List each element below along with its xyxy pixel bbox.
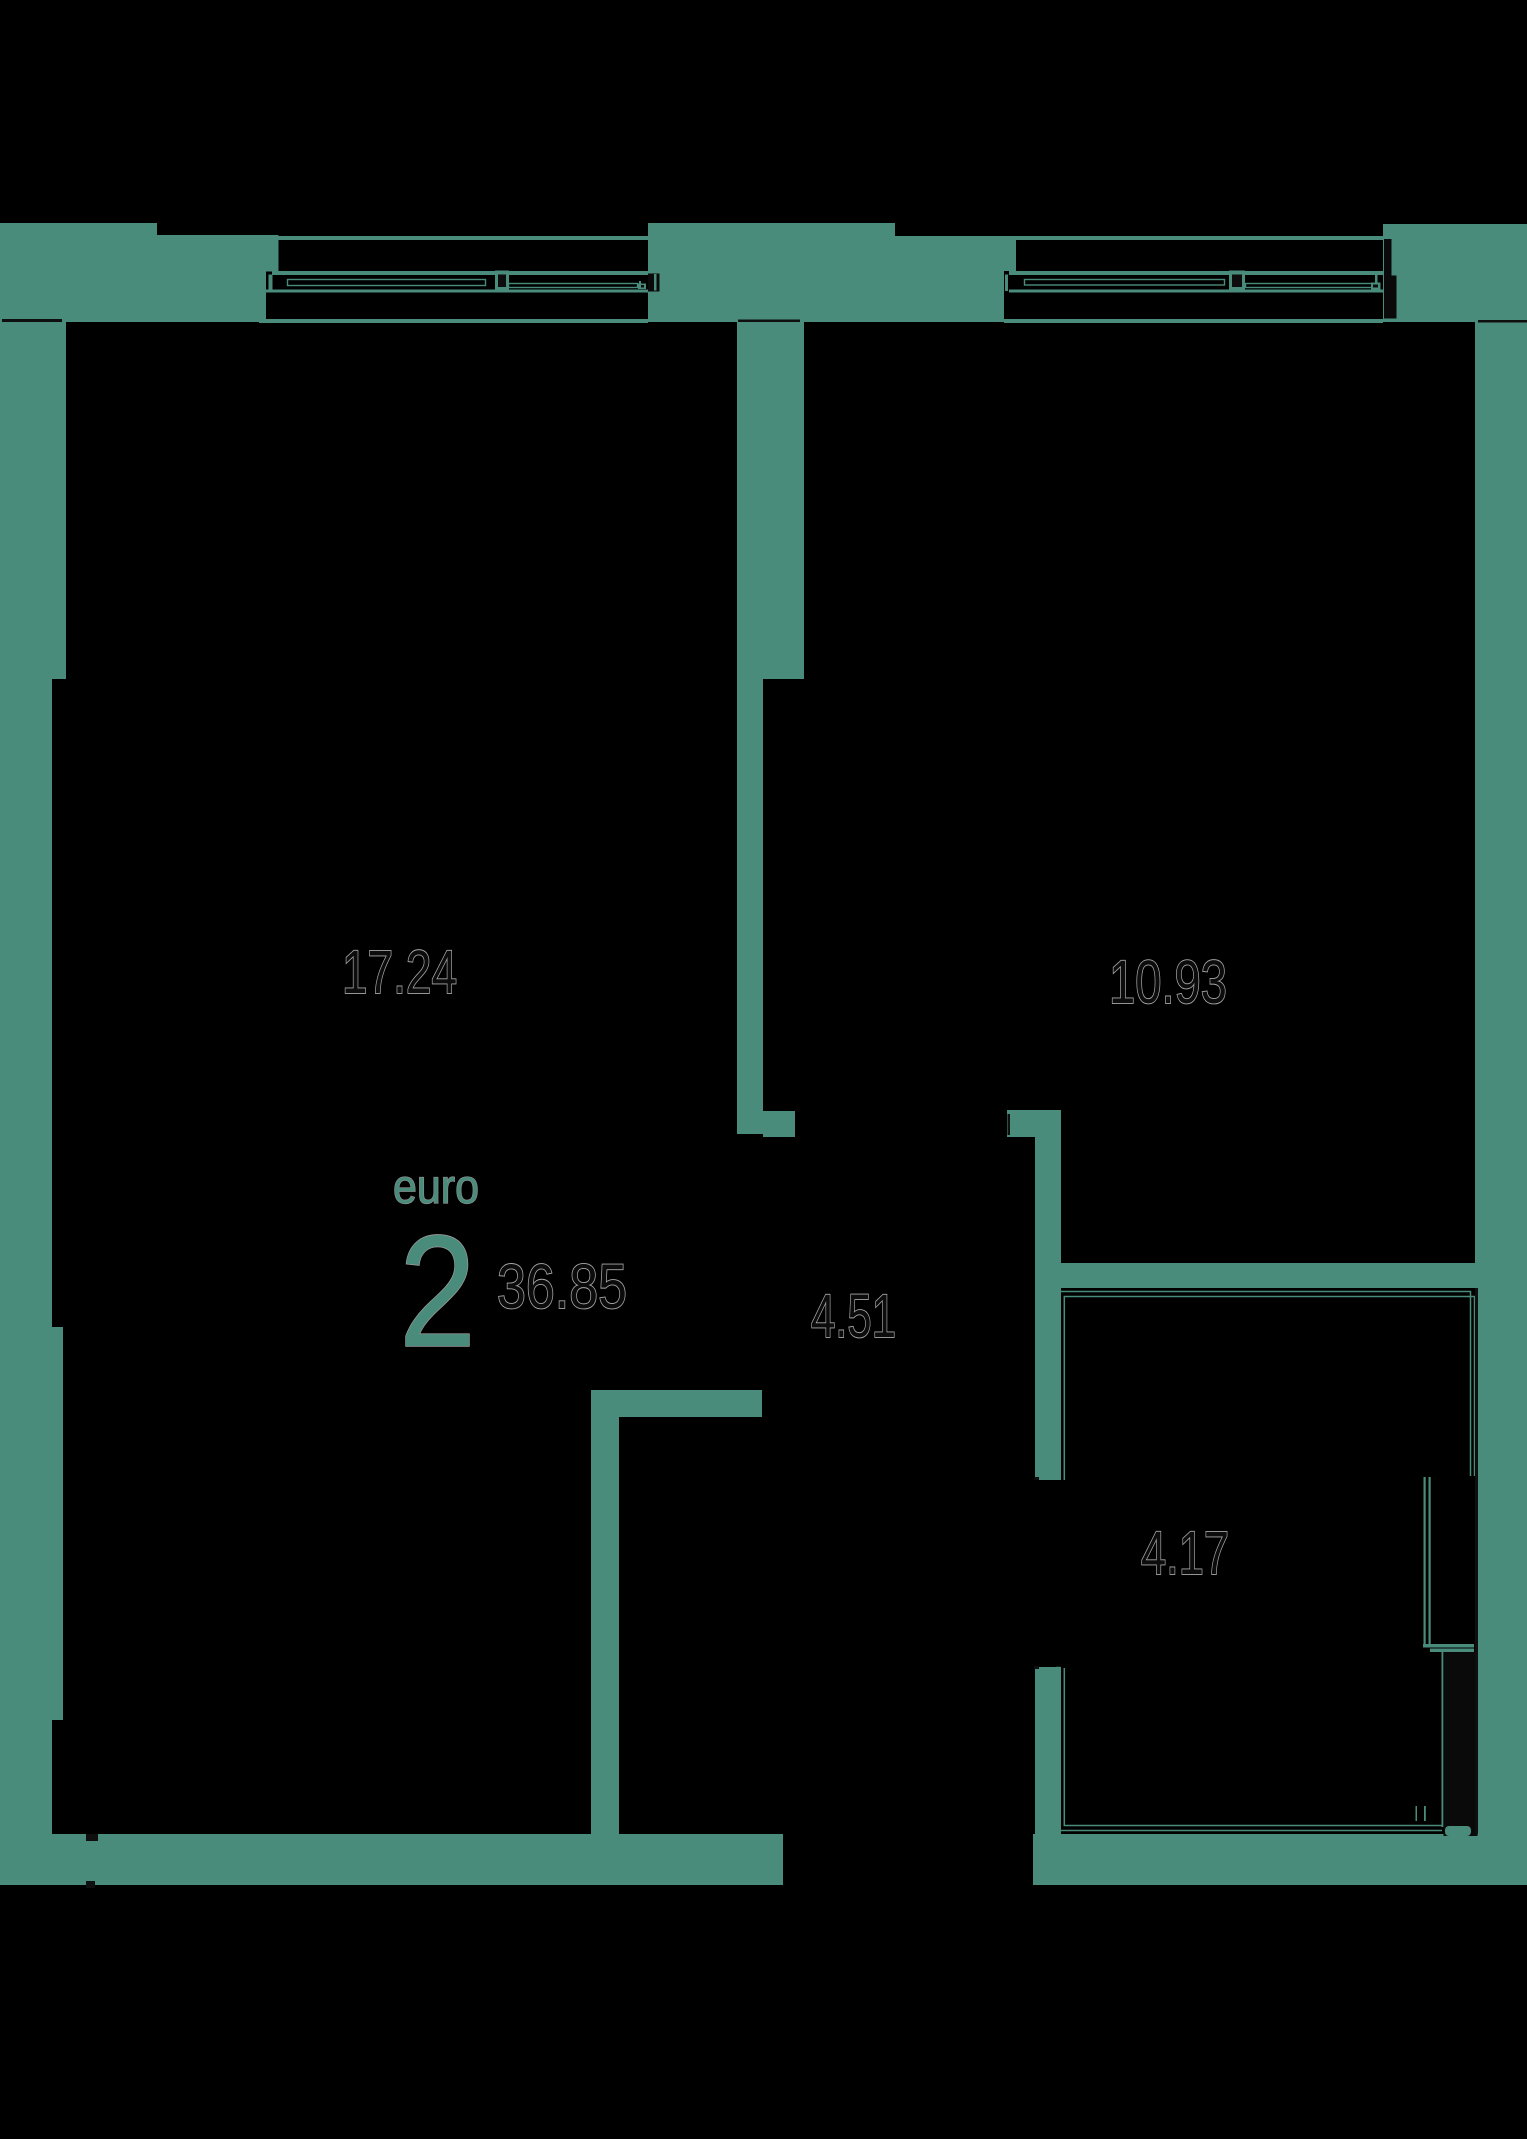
svg-text:4.51: 4.51: [811, 1282, 896, 1350]
svg-text:17.24: 17.24: [342, 938, 457, 1006]
svg-text:4.17: 4.17: [1141, 1519, 1229, 1587]
svg-text:10.93: 10.93: [1109, 948, 1227, 1016]
svg-text:2: 2: [399, 1202, 476, 1380]
svg-text:36.85: 36.85: [497, 1252, 627, 1322]
